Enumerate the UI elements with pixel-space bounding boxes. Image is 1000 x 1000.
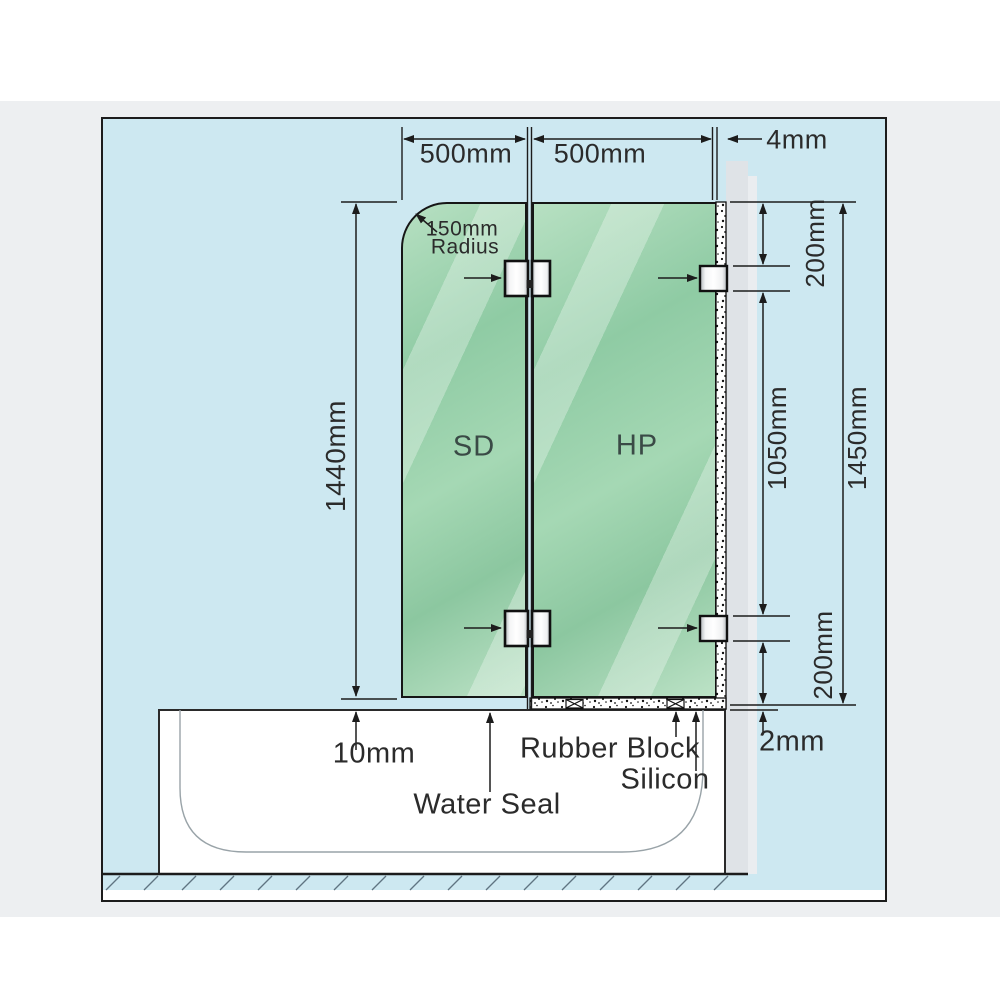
- silicon-label: Silicon: [621, 766, 710, 795]
- panel-sd-label: SD: [453, 433, 495, 462]
- dim-glass-height-label: 1440mm: [322, 400, 350, 512]
- floor-hatch: [103, 876, 748, 892]
- water-seal-label: Water Seal: [413, 791, 560, 820]
- panel-hp-label: HP: [616, 432, 658, 461]
- dim-bottom-bracket-offset-label: 200mm: [810, 610, 836, 699]
- wall-bracket-bottom: [700, 616, 727, 641]
- hinge-bottom: [505, 611, 550, 646]
- hinge-top: [505, 261, 550, 296]
- dim-bottom-gap-label: 10mm: [333, 740, 416, 769]
- dim-base-gap-label: 2mm: [759, 728, 825, 757]
- rubber-base-strip: [530, 698, 726, 709]
- dim-top-bracket-offset-label: 200mm: [802, 198, 828, 287]
- rubber-block-label: Rubber Block: [520, 735, 700, 764]
- dim-hp-width-label: 500mm: [554, 141, 647, 168]
- dim-sd-width-label: 500mm: [420, 141, 513, 168]
- dim-wall-gap-label: 4mm: [766, 127, 828, 154]
- wall-bracket-top: [700, 266, 727, 291]
- pointer-arrows: [356, 139, 763, 792]
- corner-radius-word-label: Radius: [431, 237, 499, 258]
- dim-overall-height-label: 1450mm: [844, 386, 870, 490]
- dim-bracket-spacing-label: 1050mm: [764, 386, 790, 490]
- screenshot-stage: 500mm 500mm 4mm 150mm Radius 1440mm 200m…: [0, 0, 1000, 1000]
